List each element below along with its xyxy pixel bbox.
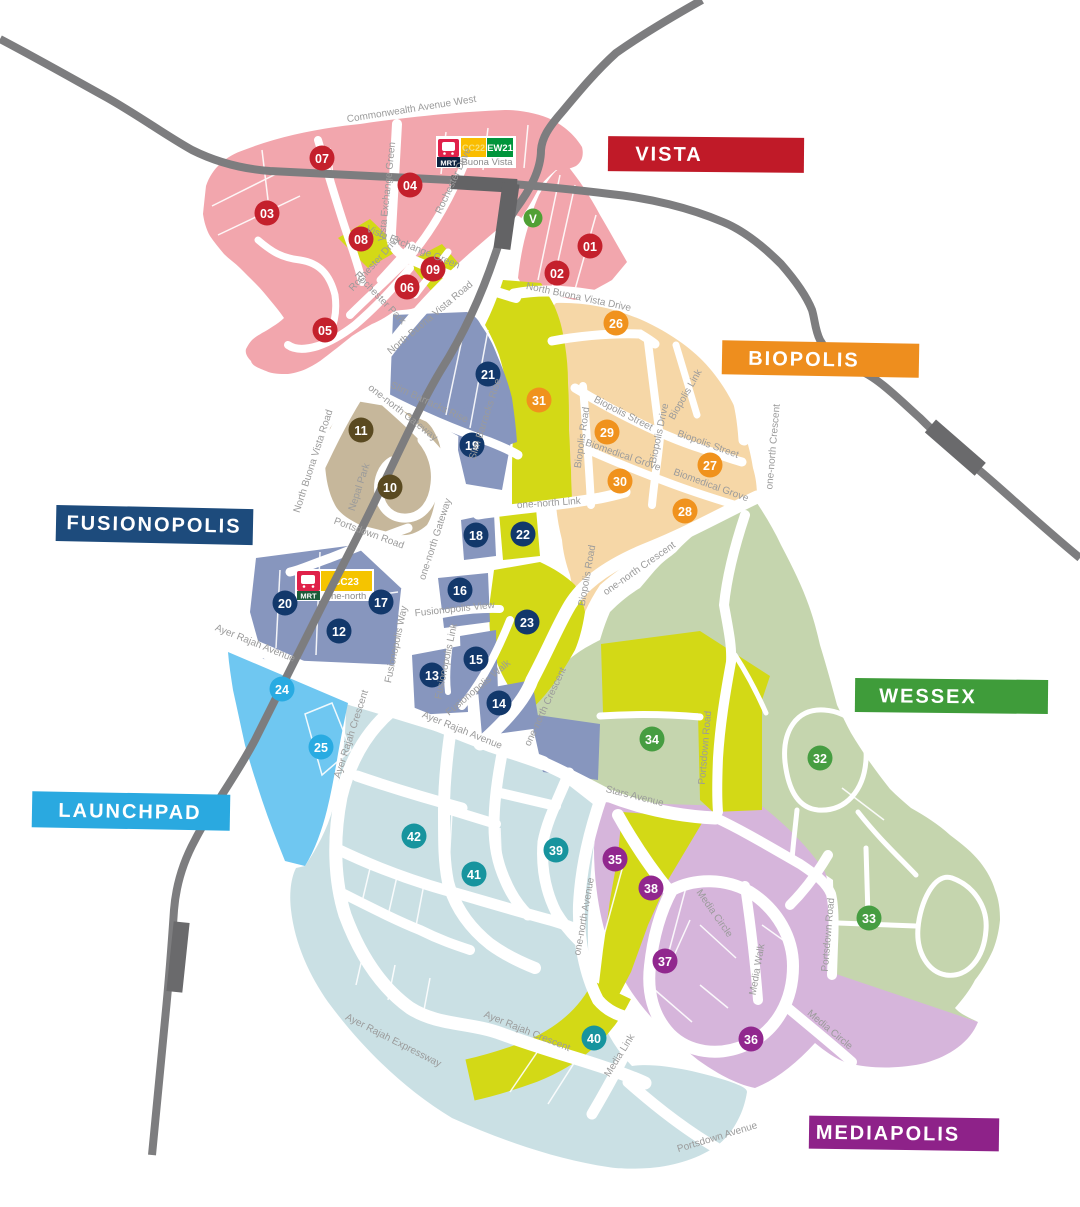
svg-text:27: 27: [703, 459, 717, 473]
svg-text:11: 11: [354, 424, 367, 438]
svg-text:02: 02: [550, 267, 564, 281]
svg-text:LAUNCHPAD: LAUNCHPAD: [58, 800, 202, 824]
svg-text:22: 22: [516, 528, 530, 542]
svg-text:42: 42: [407, 830, 421, 844]
svg-text:24: 24: [275, 683, 289, 697]
svg-text:06: 06: [400, 281, 414, 295]
svg-text:32: 32: [813, 752, 827, 766]
svg-text:BIOPOLIS: BIOPOLIS: [748, 348, 860, 372]
svg-text:29: 29: [600, 426, 614, 440]
svg-text:26: 26: [609, 317, 623, 331]
svg-text:05: 05: [318, 324, 332, 338]
svg-text:39: 39: [549, 844, 563, 858]
svg-text:12: 12: [332, 625, 346, 639]
svg-text:17: 17: [374, 596, 388, 610]
svg-text:01: 01: [583, 240, 597, 254]
svg-text:WESSEX: WESSEX: [879, 685, 977, 708]
svg-text:EW21: EW21: [487, 143, 514, 154]
svg-text:04: 04: [403, 179, 417, 193]
svg-text:33: 33: [862, 912, 876, 926]
svg-text:30: 30: [613, 475, 627, 489]
svg-text:15: 15: [469, 653, 483, 667]
svg-text:31: 31: [532, 394, 546, 408]
svg-text:25: 25: [314, 741, 328, 755]
svg-text:08: 08: [354, 233, 368, 247]
svg-text:03: 03: [260, 207, 274, 221]
svg-text:FUSIONOPOLIS: FUSIONOPOLIS: [66, 512, 242, 538]
svg-text:38: 38: [644, 882, 658, 896]
svg-text:14: 14: [492, 697, 506, 711]
svg-text:28: 28: [678, 505, 692, 519]
svg-text:23: 23: [520, 616, 534, 630]
svg-text:09: 09: [426, 263, 440, 277]
svg-text:40: 40: [587, 1032, 601, 1046]
svg-text:18: 18: [469, 529, 483, 543]
svg-text:41: 41: [467, 868, 481, 882]
svg-text:07: 07: [315, 152, 329, 166]
svg-text:10: 10: [383, 481, 397, 495]
svg-text:V: V: [529, 214, 537, 226]
svg-text:VISTA: VISTA: [635, 143, 703, 166]
svg-text:34: 34: [645, 733, 659, 747]
svg-text:36: 36: [744, 1033, 758, 1047]
svg-text:20: 20: [278, 597, 292, 611]
svg-text:MEDIAPOLIS: MEDIAPOLIS: [816, 1122, 961, 1146]
svg-text:37: 37: [658, 955, 672, 969]
svg-text:16: 16: [453, 584, 467, 598]
svg-text:MRT: MRT: [300, 592, 317, 601]
svg-text:35: 35: [608, 853, 622, 867]
